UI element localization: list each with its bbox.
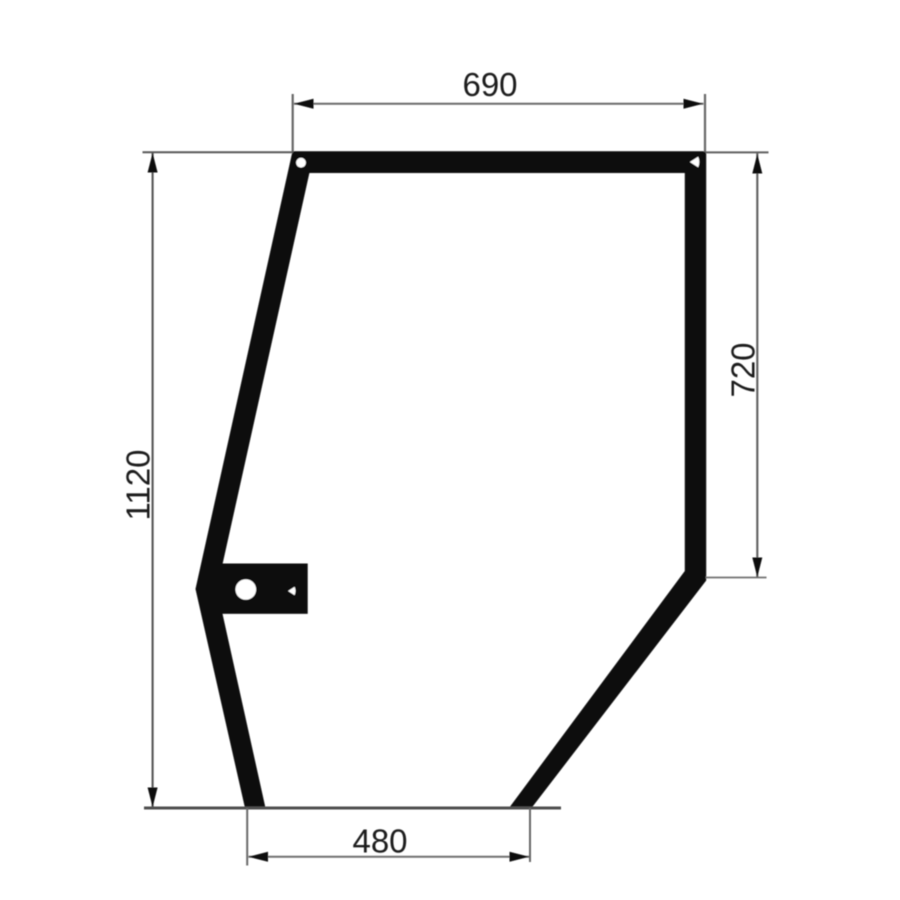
svg-text:690: 690 <box>462 66 517 103</box>
svg-text:720: 720 <box>725 342 762 397</box>
svg-text:480: 480 <box>352 823 407 860</box>
svg-text:1120: 1120 <box>120 450 157 521</box>
